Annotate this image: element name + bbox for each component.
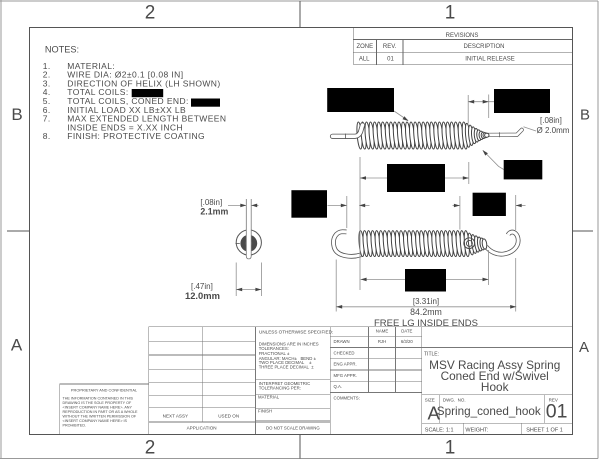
svg-text:B: B	[11, 105, 22, 124]
svg-text:NAME: NAME	[376, 328, 389, 333]
svg-text:PROHIBITED.: PROHIBITED.	[63, 423, 87, 427]
svg-text:USED ON: USED ON	[218, 414, 239, 419]
svg-text:2: 2	[145, 3, 156, 24]
svg-text:7.: 7.	[43, 114, 51, 124]
svg-text:ALL: ALL	[359, 57, 370, 63]
svg-text:THE INFORMATION CONTAINED IN T: THE INFORMATION CONTAINED IN THIS	[63, 396, 134, 400]
svg-text:REV.: REV.	[383, 44, 397, 50]
svg-text:<INSERT COMPANY NAME HERE> IS: <INSERT COMPANY NAME HERE> IS	[63, 419, 128, 423]
svg-text:COMMENTS:: COMMENTS:	[334, 395, 360, 400]
svg-text:WITHOUT THE WRITTEN PERMISSION: WITHOUT THE WRITTEN PERMISSION OF	[63, 414, 137, 418]
svg-text:DESCRIPTION: DESCRIPTION	[463, 44, 504, 50]
svg-text:REVISIONS: REVISIONS	[446, 33, 479, 39]
svg-text:01: 01	[546, 401, 568, 423]
svg-text:A: A	[11, 336, 23, 355]
svg-text:TITLE:: TITLE:	[424, 351, 439, 357]
svg-text:PROPRIETARY AND CONFIDENTIAL: PROPRIETARY AND CONFIDENTIAL	[71, 387, 138, 392]
svg-text:SCALE: 1:1: SCALE: 1:1	[425, 427, 454, 433]
svg-text:6/3/20: 6/3/20	[401, 339, 414, 344]
svg-text:TOLERANCING PER:: TOLERANCING PER:	[259, 385, 301, 390]
svg-text:12.0mm: 12.0mm	[185, 290, 220, 301]
svg-text:Ø 2.0mm: Ø 2.0mm	[537, 126, 570, 135]
svg-text:84.2mm: 84.2mm	[410, 307, 442, 317]
svg-text:[3.31in]: [3.31in]	[413, 297, 439, 306]
svg-text:B: B	[580, 107, 590, 124]
svg-text:INITIAL RELEASE: INITIAL RELEASE	[465, 57, 514, 63]
svg-text:THREE PLACE DECIMAL ±: THREE PLACE DECIMAL ±	[259, 365, 315, 370]
svg-text:CHECKED: CHECKED	[334, 350, 355, 355]
svg-text:ZONE: ZONE	[356, 44, 373, 50]
svg-text:SHEET 1 OF 1: SHEET 1 OF 1	[526, 427, 563, 433]
svg-text:NOTES:: NOTES:	[45, 45, 79, 55]
svg-text:FINISH: FINISH	[258, 409, 272, 414]
svg-text:[.08in]: [.08in]	[540, 116, 562, 125]
svg-text:MFG APPR.: MFG APPR.	[334, 373, 357, 378]
svg-text:FREE LG INSIDE ENDS: FREE LG INSIDE ENDS	[374, 318, 478, 329]
svg-text:8.: 8.	[43, 131, 51, 141]
svg-text:WEIGHT:: WEIGHT:	[465, 427, 488, 433]
svg-text:2: 2	[145, 438, 156, 459]
svg-text:<INSERT COMPANY NAME HERE>. A: <INSERT COMPANY NAME HERE>. ANY	[63, 405, 133, 409]
svg-text:Hook: Hook	[481, 380, 509, 394]
svg-text:DRAWING IS THE SOLE PROPERTY O: DRAWING IS THE SOLE PROPERTY OF	[63, 401, 132, 405]
svg-text:1: 1	[445, 438, 456, 459]
svg-text:1: 1	[445, 3, 456, 24]
svg-text:MATERIAL: MATERIAL	[258, 395, 280, 400]
svg-text:RJH: RJH	[378, 339, 386, 344]
svg-text:FINISH: PROTECTIVE COATING: FINISH: PROTECTIVE COATING	[67, 131, 205, 141]
svg-text:DO NOT SCALE DRAWING: DO NOT SCALE DRAWING	[266, 426, 320, 431]
svg-text:APPLICATION: APPLICATION	[187, 425, 217, 430]
svg-text:A: A	[579, 339, 589, 356]
svg-text:ENG APPR.: ENG APPR.	[334, 362, 357, 367]
svg-text:01: 01	[387, 57, 394, 63]
svg-text:2.1mm: 2.1mm	[200, 207, 228, 217]
svg-text:Spring_coned_hook: Spring_coned_hook	[437, 405, 541, 418]
svg-text:REPRODUCTION IN PART OR AS A W: REPRODUCTION IN PART OR AS A WHOLE	[63, 410, 139, 414]
svg-text:DRAWN: DRAWN	[334, 339, 350, 344]
svg-text:DATE: DATE	[401, 328, 412, 333]
svg-text:NEXT ASSY: NEXT ASSY	[163, 414, 188, 419]
svg-text:DWG. NO.: DWG. NO.	[443, 398, 466, 403]
svg-text:Q.A.: Q.A.	[334, 384, 343, 389]
svg-text:[.08in]: [.08in]	[200, 198, 222, 207]
svg-text:UNLESS OTHERWISE SPECIFIED:: UNLESS OTHERWISE SPECIFIED:	[259, 329, 333, 334]
